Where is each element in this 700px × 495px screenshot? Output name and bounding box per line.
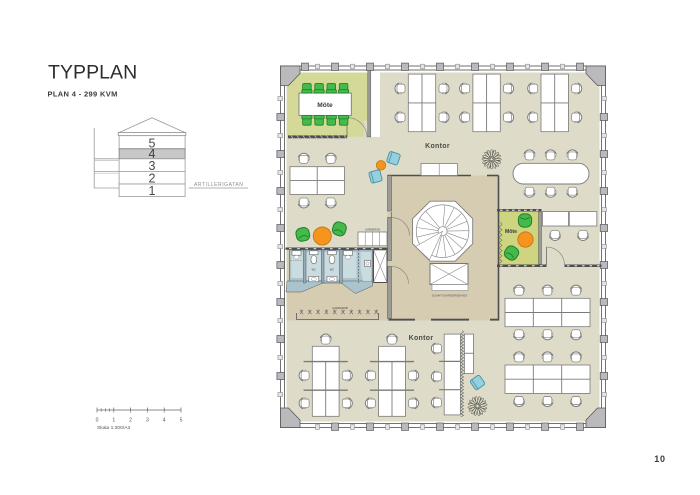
svg-text:WC: WC [330,267,334,271]
svg-text:10: 10 [654,454,665,464]
svg-text:2: 2 [129,418,132,424]
svg-text:1: 1 [149,184,156,198]
svg-text:Kontor: Kontor [409,335,434,342]
svg-text:4: 4 [163,418,166,424]
svg-text:Möte: Möte [317,102,333,109]
svg-text:GARDEROB: GARDEROB [365,228,380,232]
svg-text:5: 5 [180,418,183,424]
svg-text:SCHAKT/GARDEROB/HISS: SCHAKT/GARDEROB/HISS [432,293,468,297]
svg-text:Möte: Möte [505,229,517,235]
svg-text:Skala 1:300/A3: Skala 1:300/A3 [97,425,130,431]
svg-text:1: 1 [112,418,115,424]
svg-text:GARDEROB: GARDEROB [332,306,348,310]
svg-text:TYPPLAN: TYPPLAN [48,62,137,84]
svg-text:ARTILLERIGATAN: ARTILLERIGATAN [194,182,243,188]
svg-text:Kontor: Kontor [425,143,450,150]
svg-text:WC: WC [312,267,316,271]
svg-text:0: 0 [96,418,99,424]
svg-text:3: 3 [146,418,149,424]
svg-text:PLAN 4 - 299 KVM: PLAN 4 - 299 KVM [48,89,118,98]
